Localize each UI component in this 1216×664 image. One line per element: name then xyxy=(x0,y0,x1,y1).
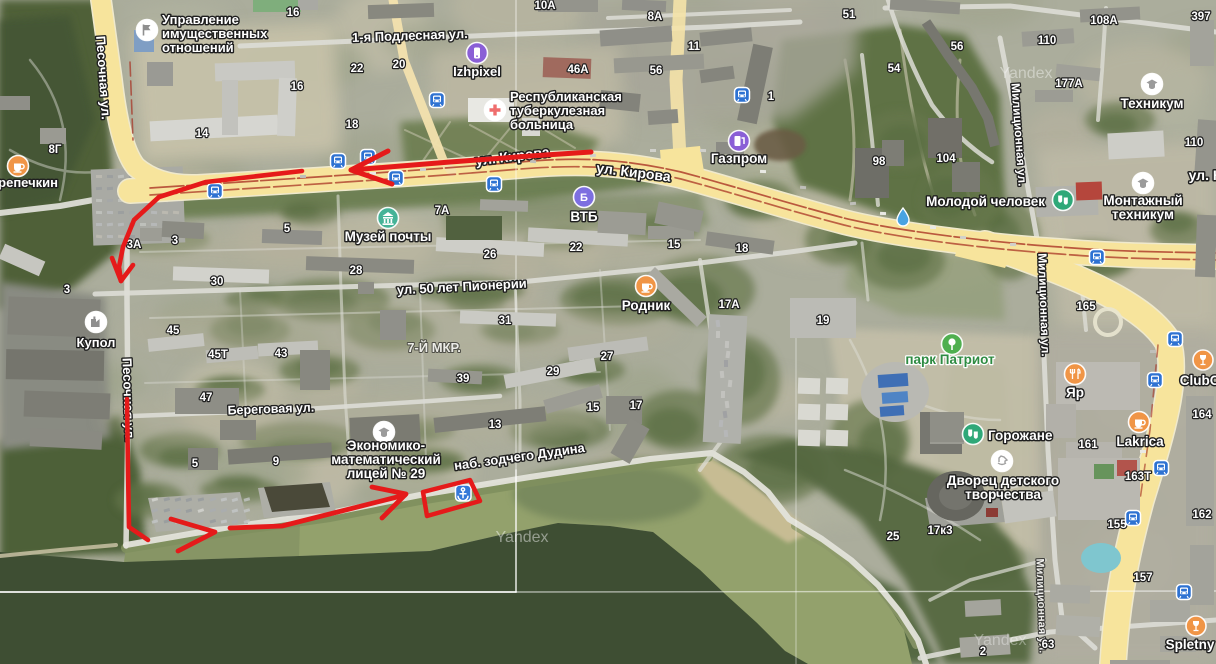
svg-text:8Г: 8Г xyxy=(49,144,62,156)
svg-text:43: 43 xyxy=(275,348,288,360)
svg-text:164: 164 xyxy=(1192,409,1212,421)
svg-text:математический: математический xyxy=(331,452,441,467)
svg-text:157: 157 xyxy=(1133,572,1152,584)
svg-text:9: 9 xyxy=(273,456,279,468)
svg-text:46А: 46А xyxy=(567,64,588,76)
svg-text:Монтажный: Монтажный xyxy=(1103,193,1182,208)
svg-text:Музей почты: Музей почты xyxy=(345,229,432,244)
svg-text:отношений: отношений xyxy=(162,40,234,55)
svg-text:Yandex: Yandex xyxy=(495,529,548,546)
svg-text:Газпром: Газпром xyxy=(711,151,767,166)
svg-text:ул. К: ул. К xyxy=(1189,167,1216,183)
svg-text:54: 54 xyxy=(888,63,901,75)
svg-text:19: 19 xyxy=(817,315,830,327)
svg-text:104: 104 xyxy=(936,153,956,165)
svg-text:161: 161 xyxy=(1078,439,1098,451)
svg-text:13: 13 xyxy=(489,419,502,431)
svg-text:5: 5 xyxy=(192,458,199,470)
svg-text:7А: 7А xyxy=(435,205,450,217)
svg-text:47: 47 xyxy=(200,392,213,404)
svg-text:5: 5 xyxy=(284,223,291,235)
svg-text:108А: 108А xyxy=(1090,15,1118,27)
svg-text:Техникум: Техникум xyxy=(1121,96,1184,111)
svg-text:3А: 3А xyxy=(127,239,142,251)
svg-text:Spletny: Spletny xyxy=(1166,637,1215,652)
svg-text:56: 56 xyxy=(650,65,663,77)
svg-text:98: 98 xyxy=(873,156,886,168)
svg-text:10А: 10А xyxy=(534,0,555,12)
svg-text:165: 165 xyxy=(1076,301,1096,313)
svg-text:18: 18 xyxy=(346,119,359,131)
svg-text:397: 397 xyxy=(1191,11,1210,23)
svg-text:больница: больница xyxy=(510,117,574,132)
svg-text:20: 20 xyxy=(393,59,406,71)
svg-text:Lakrica: Lakrica xyxy=(1116,434,1164,449)
svg-text:Экономико-: Экономико- xyxy=(347,438,425,453)
svg-text:Управление: Управление xyxy=(162,12,239,27)
svg-text:ClubO: ClubO xyxy=(1180,373,1216,388)
svg-text:22: 22 xyxy=(351,63,364,75)
svg-text:Купол: Купол xyxy=(77,335,116,350)
svg-text:29: 29 xyxy=(547,366,560,378)
svg-text:лицей № 29: лицей № 29 xyxy=(347,466,426,481)
svg-text:парк Патриот: парк Патриот xyxy=(905,352,995,367)
svg-text:25: 25 xyxy=(887,531,900,543)
svg-text:177А: 177А xyxy=(1055,78,1083,90)
svg-text:техникум: техникум xyxy=(1112,207,1174,222)
svg-text:155: 155 xyxy=(1107,519,1127,531)
svg-text:18: 18 xyxy=(736,243,749,255)
svg-text:31: 31 xyxy=(499,315,512,327)
svg-text:22: 22 xyxy=(570,242,583,254)
svg-text:2: 2 xyxy=(980,646,986,658)
svg-text:имущественных: имущественных xyxy=(162,26,268,41)
svg-text:1: 1 xyxy=(768,91,775,103)
svg-text:17А: 17А xyxy=(718,299,739,311)
svg-text:45: 45 xyxy=(167,325,180,337)
svg-text:11: 11 xyxy=(688,41,701,53)
svg-text:17: 17 xyxy=(630,400,643,412)
svg-text:Яр: Яр xyxy=(1066,385,1084,400)
svg-text:110: 110 xyxy=(1038,35,1057,47)
svg-text:51: 51 xyxy=(843,9,856,21)
svg-text:28: 28 xyxy=(350,265,363,277)
svg-text:ВТБ: ВТБ xyxy=(570,209,597,224)
svg-text:26: 26 xyxy=(484,249,497,261)
svg-text:7-Й МКР.: 7-Й МКР. xyxy=(407,340,461,355)
svg-text:3: 3 xyxy=(172,235,178,247)
svg-text:Республиканская: Республиканская xyxy=(510,89,622,104)
svg-text:Молодой человек: Молодой человек xyxy=(926,194,1045,209)
svg-text:14: 14 xyxy=(196,128,209,140)
svg-text:туберкулезная: туберкулезная xyxy=(510,103,605,118)
svg-text:15: 15 xyxy=(587,402,600,414)
svg-text:17к3: 17к3 xyxy=(928,525,953,537)
svg-text:15: 15 xyxy=(668,239,681,251)
svg-text:27: 27 xyxy=(601,351,614,363)
svg-text:16: 16 xyxy=(287,7,300,19)
svg-text:45Т: 45Т xyxy=(208,349,228,361)
svg-text:30: 30 xyxy=(211,276,224,288)
svg-text:162: 162 xyxy=(1192,509,1211,521)
svg-text:Терепечкин: Терепечкин xyxy=(0,175,58,190)
svg-text:39: 39 xyxy=(457,373,470,385)
svg-text:16: 16 xyxy=(291,81,304,93)
svg-text:110: 110 xyxy=(1185,137,1204,149)
svg-text:Родник: Родник xyxy=(622,298,671,313)
svg-text:Izhpixel: Izhpixel xyxy=(453,64,501,79)
svg-text:163Т: 163Т xyxy=(1125,471,1151,483)
svg-text:63: 63 xyxy=(1042,639,1055,651)
svg-text:3: 3 xyxy=(64,284,70,296)
svg-text:Горожане: Горожане xyxy=(988,428,1053,443)
svg-text:Yandex: Yandex xyxy=(999,65,1052,82)
svg-text:Дворец детского: Дворец детского xyxy=(947,473,1059,488)
svg-text:Б: Б xyxy=(580,192,588,204)
svg-text:8А: 8А xyxy=(648,11,663,23)
svg-text:56: 56 xyxy=(951,41,964,53)
svg-text:творчества: творчества xyxy=(965,487,1041,502)
